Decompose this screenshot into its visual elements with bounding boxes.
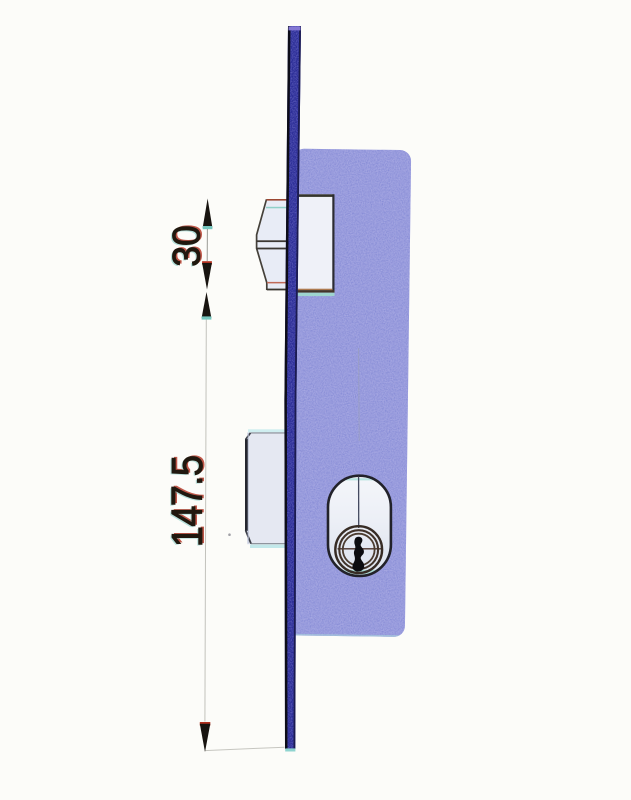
svg-text:30: 30 xyxy=(165,225,209,267)
svg-text:147.5: 147.5 xyxy=(163,456,212,547)
